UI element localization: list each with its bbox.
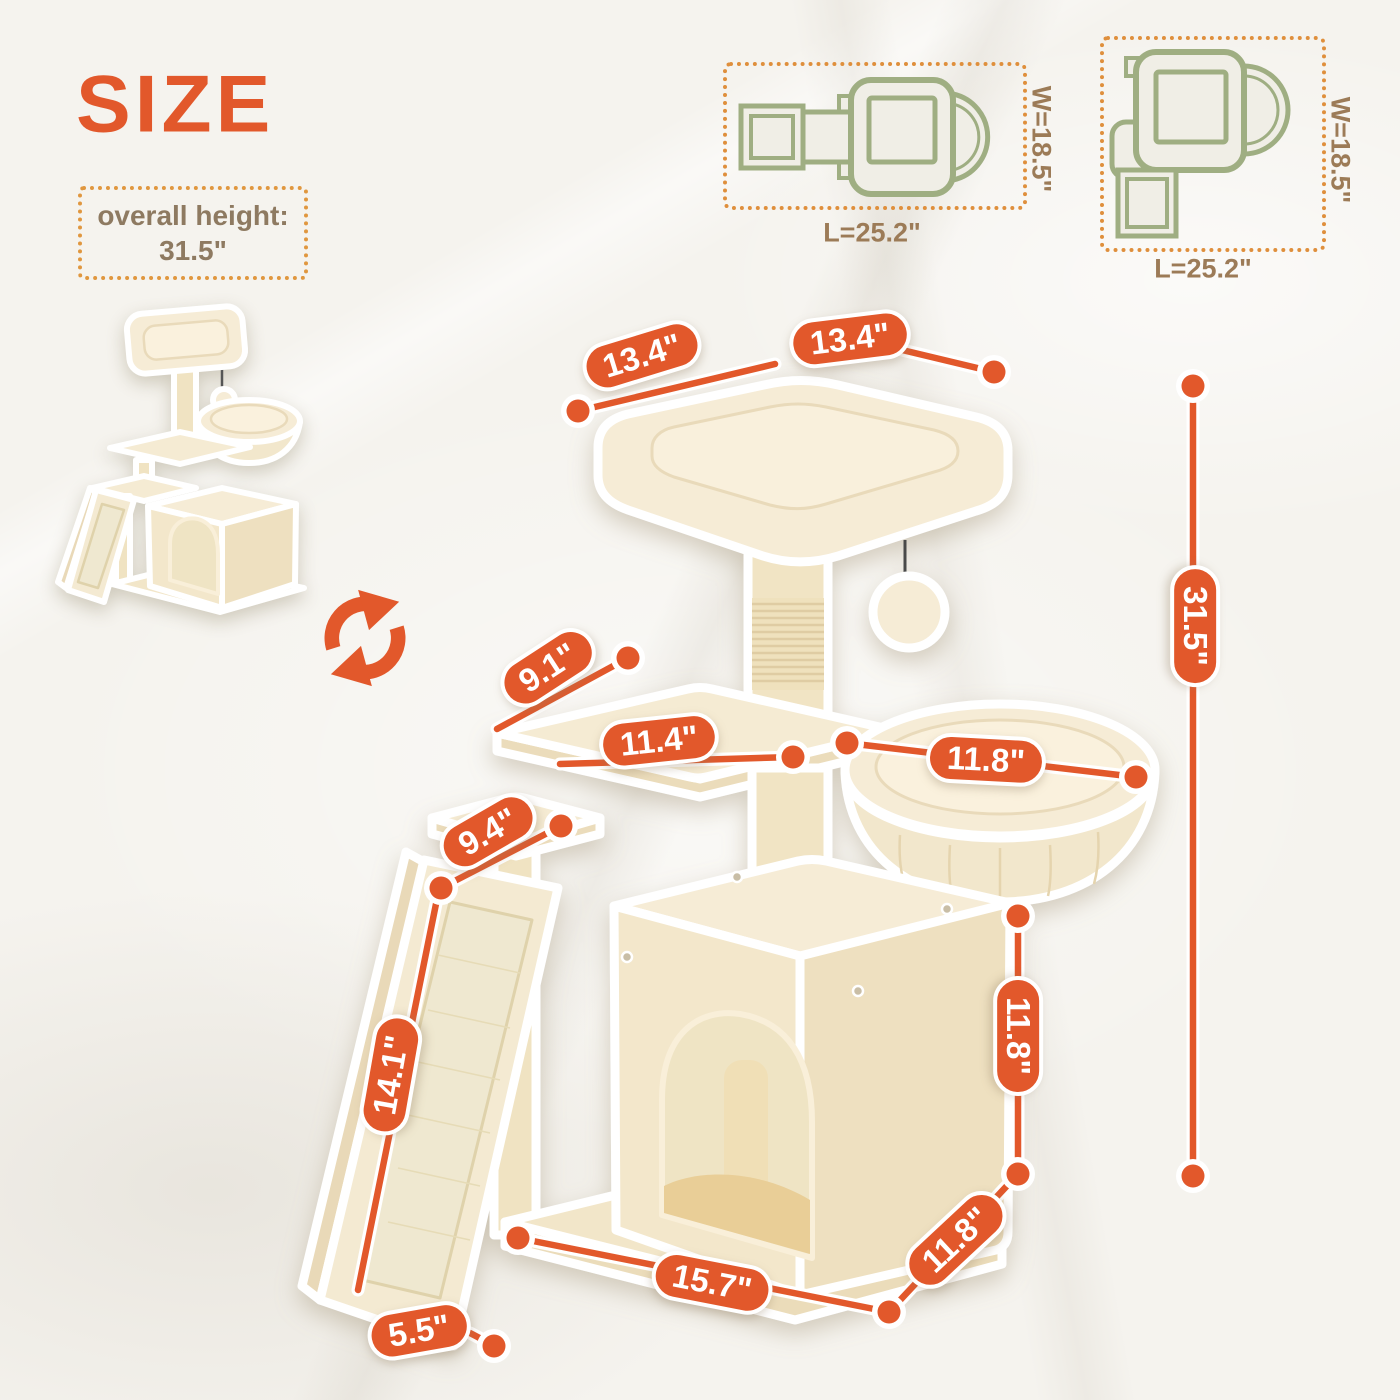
cat-tree-shapes — [302, 381, 1155, 1347]
dim-house-height: 11.8" — [993, 976, 1043, 1096]
product-size-infographic: SIZE overall height: 31.5" — [0, 0, 1400, 1400]
dim-overall-height: 31.5" — [1170, 565, 1220, 687]
dim-basket-diameter: 11.8" — [925, 732, 1048, 789]
cat-tree-main-image — [0, 0, 1400, 1400]
